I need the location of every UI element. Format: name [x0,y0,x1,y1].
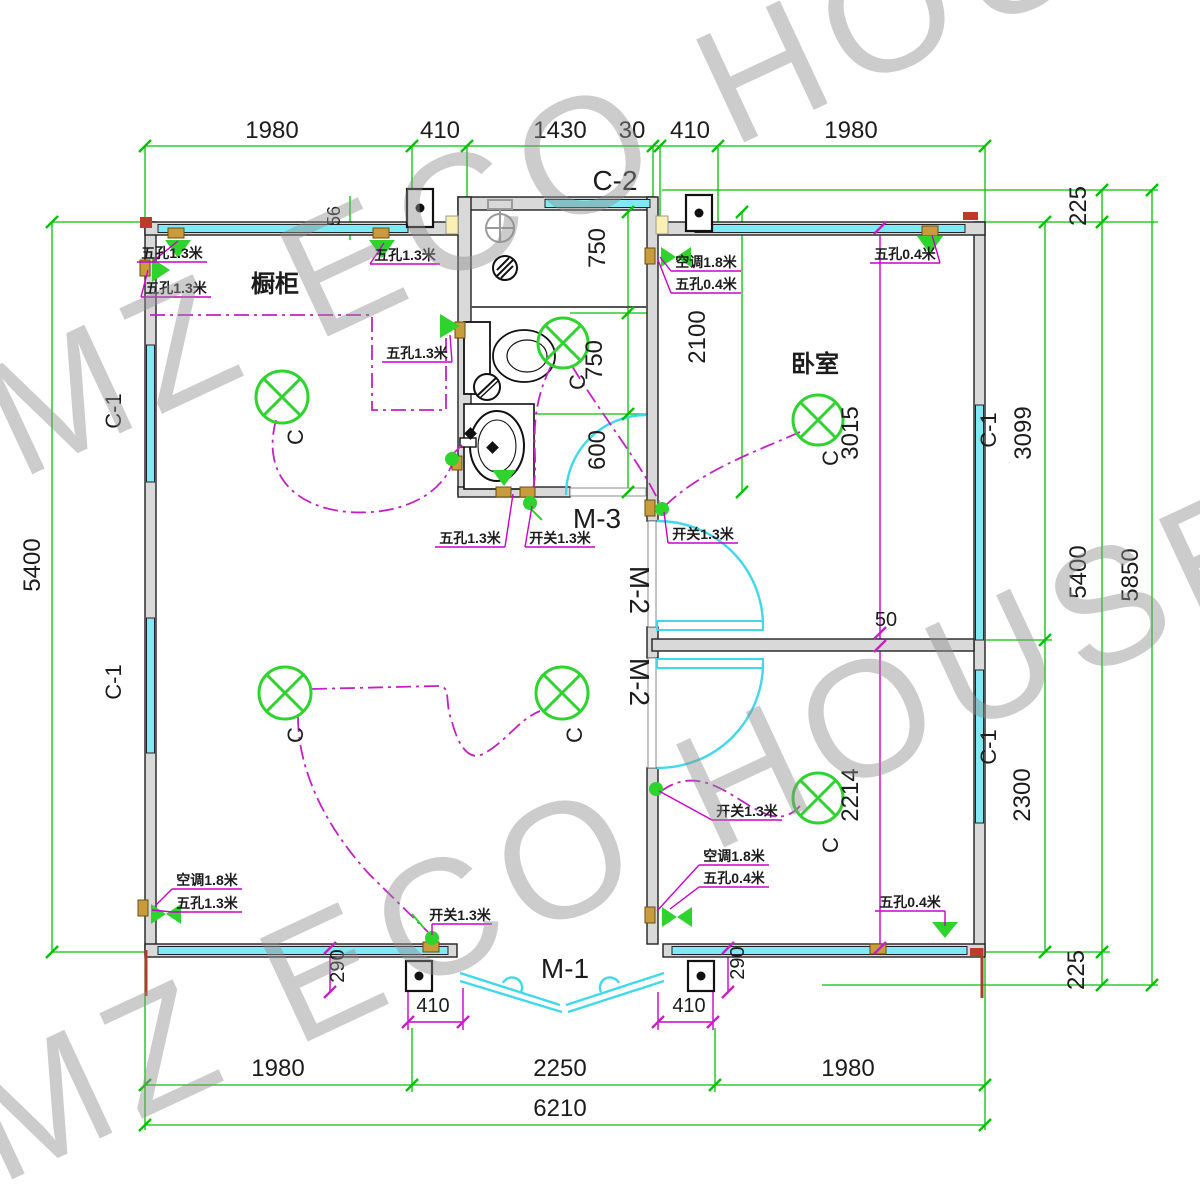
light-label: C [562,727,587,743]
ann-socket04: 五孔0.4米 [675,276,737,292]
dim-bath-750-lower: 750 [581,340,608,380]
ann-socket13: 五孔1.3米 [386,345,448,361]
door-label-m2-upper: M-2 [624,566,655,614]
dim-right-225-top: 225 [1065,186,1092,226]
ann-socket13: 五孔1.3米 [176,895,238,911]
wire-bath-sockets [531,366,551,496]
door-m2-upper-leaf [657,621,763,630]
light-label: C [565,374,590,390]
light-label: C [283,429,308,445]
dim-top-1980-left: 1980 [245,117,298,144]
light-symbol [536,667,588,719]
dim-bottom-2250: 2250 [533,1055,586,1082]
door-label-m2-lower: M-2 [624,658,655,706]
floor-plan-canvas: 1980 410 1430 30 410 1980 1980 2250 1980… [0,0,1200,1200]
wire-living-lights [312,686,540,756]
dim-right-225-bottom: 225 [1063,950,1090,990]
light-label: C [818,450,843,466]
room-label-bedroom: 卧室 [791,350,839,378]
dim-bottom-1980-right: 1980 [821,1055,874,1082]
window-label-c1-right-upper: C-1 [976,412,1001,447]
floor-plan-page: 1980 410 1430 30 410 1980 1980 2250 1980… [0,0,1200,1200]
ann-switch13: 开关1.3米 [672,526,734,542]
ann-socket13: 五孔1.3米 [439,530,501,546]
dim-right-2300: 2300 [1009,768,1036,821]
dim-2100: 2100 [684,310,711,363]
window-label-c1-left-lower: C-1 [101,664,126,699]
window-c1-left-lower [147,618,155,753]
dim-bath-600: 600 [584,430,611,470]
door-m2-lower-leaf [657,659,763,668]
ann-ac18: 空调1.8米 [176,872,238,888]
dim-door-410-right: 410 [672,995,705,1017]
ann-socket04: 五孔0.4米 [874,246,936,262]
ann-ac18: 空调1.8米 [675,254,737,270]
ann-switch13: 开关1.3米 [529,530,591,546]
dim-right-3099: 3099 [1010,406,1037,459]
dim-left-5400: 5400 [19,538,46,591]
wire-bedroom [665,432,800,506]
dim-total-6210: 6210 [533,1095,586,1122]
ann-socket04: 五孔0.4米 [879,894,941,910]
light-label: C [283,727,308,743]
light-symbol [793,395,843,445]
light-symbol [259,667,311,719]
dim-290-right: 290 [727,946,749,979]
watermark: MZ ECO HOUSE MZ ECO HOUSE [0,0,1200,1200]
